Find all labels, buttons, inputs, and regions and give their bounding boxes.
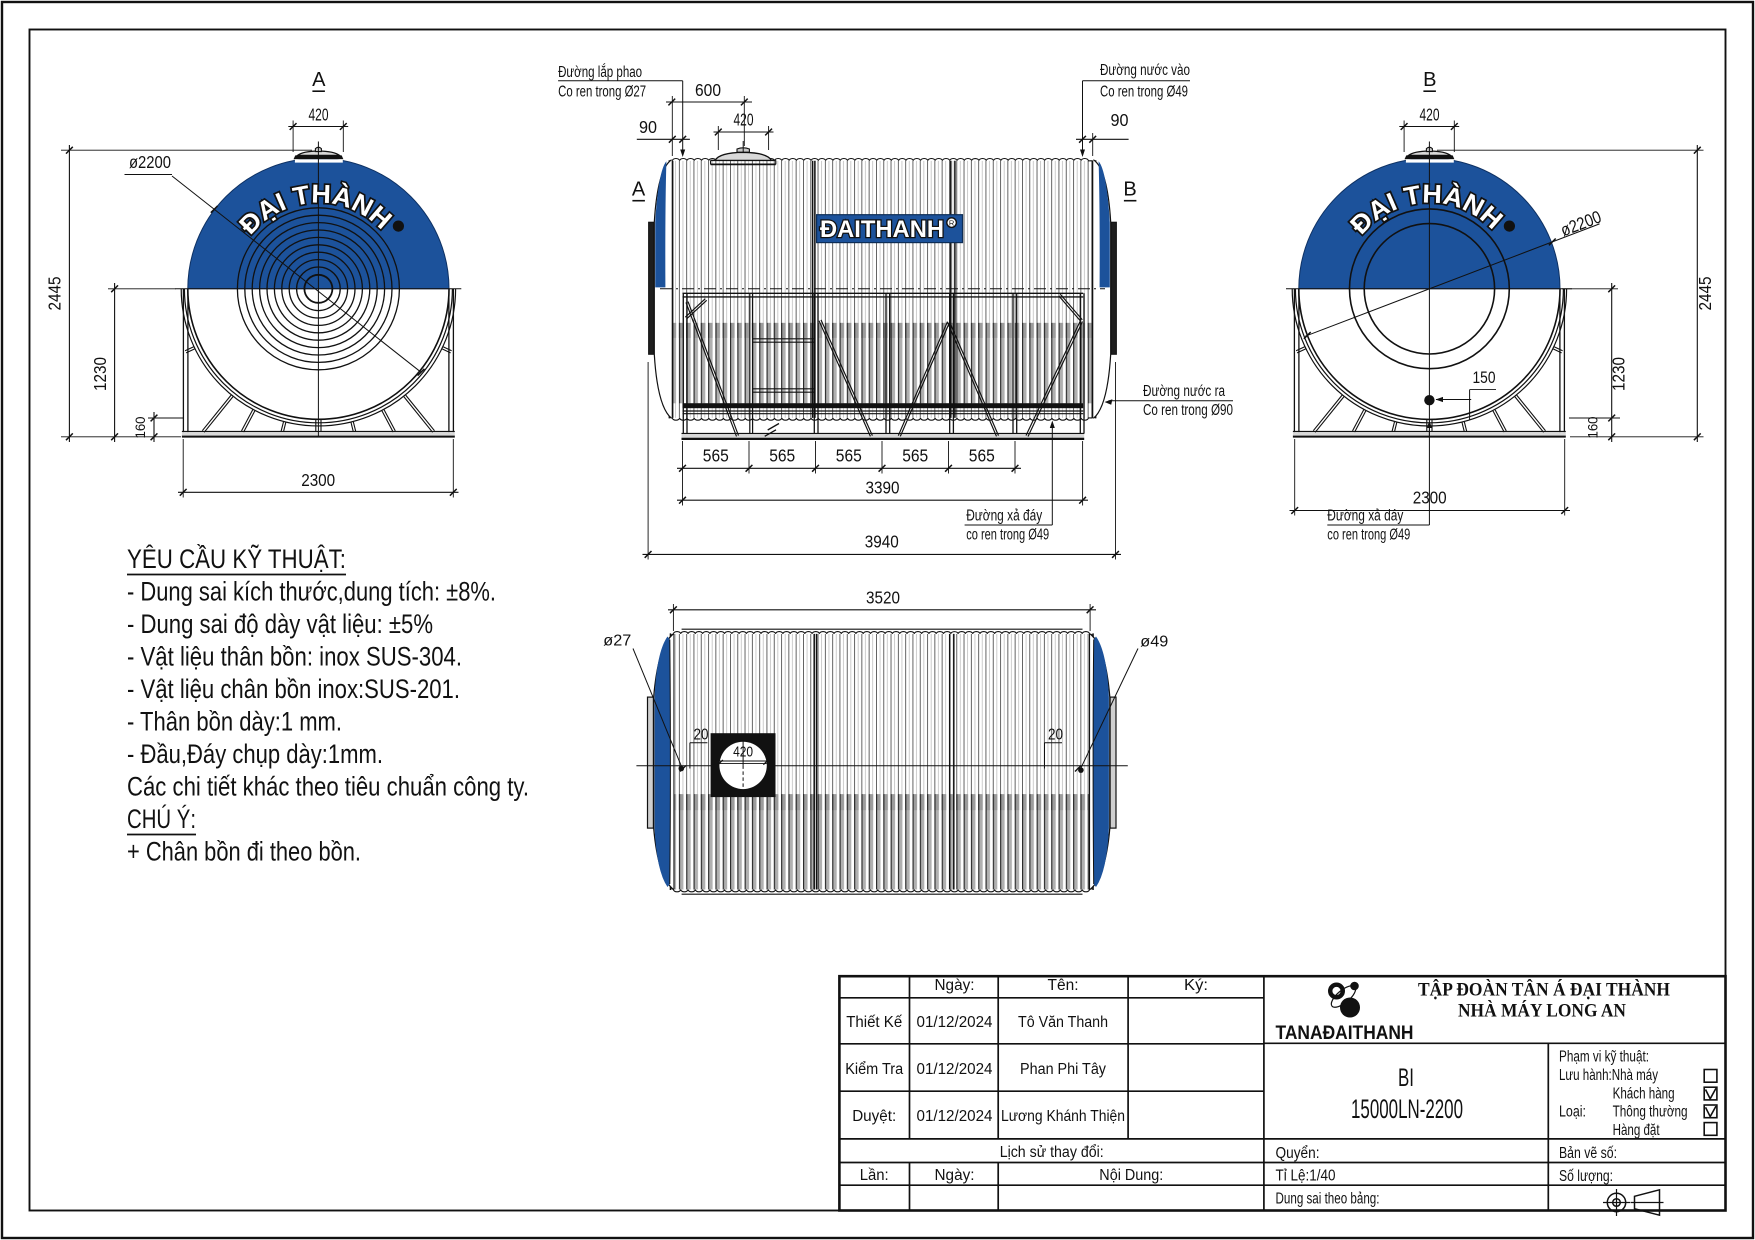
- svg-text:Các chi tiết khác theo tiêu ch: Các chi tiết khác theo tiêu chuẩn công t…: [127, 772, 529, 802]
- svg-text:Ngày:: Ngày:: [935, 1167, 975, 1184]
- svg-text:Phan Phi Tây: Phan Phi Tây: [1020, 1061, 1106, 1078]
- svg-text:Loại:: Loại:: [1559, 1104, 1586, 1121]
- svg-text:Tên:: Tên:: [1048, 977, 1079, 994]
- svg-text:Lưu hành:Nhà máy: Lưu hành:Nhà máy: [1559, 1067, 1658, 1084]
- svg-text:20: 20: [1048, 727, 1063, 744]
- svg-text:ĐAITHANH: ĐAITHANH: [820, 216, 944, 243]
- svg-text:B: B: [1123, 179, 1136, 201]
- svg-text:R: R: [949, 219, 955, 228]
- svg-text:A: A: [312, 69, 326, 91]
- svg-text:co ren trong Ø49: co ren trong Ø49: [1327, 527, 1410, 544]
- svg-text:- Thân bồn dày:1 mm.: - Thân bồn dày:1 mm.: [127, 707, 342, 737]
- svg-text:565: 565: [836, 446, 862, 466]
- svg-text:Tỉ Lệ:1/40: Tỉ Lệ:1/40: [1276, 1168, 1336, 1185]
- svg-text:565: 565: [902, 446, 928, 466]
- svg-text:420: 420: [309, 105, 329, 125]
- svg-text:Số lượng:: Số lượng:: [1559, 1168, 1613, 1185]
- svg-text:ø27: ø27: [603, 633, 631, 650]
- svg-text:Đường nước vào: Đường nước vào: [1100, 62, 1190, 79]
- svg-text:1230: 1230: [1609, 357, 1629, 391]
- svg-text:TẬP ĐOÀN TÂN Á ĐẠI THÀNH: TẬP ĐOÀN TÂN Á ĐẠI THÀNH: [1418, 979, 1670, 1001]
- svg-text:Quyển:: Quyển:: [1276, 1145, 1320, 1162]
- svg-text:Thiết Kế: Thiết Kế: [846, 1014, 902, 1031]
- svg-text:2445: 2445: [1695, 277, 1715, 311]
- svg-text:Lương Khánh Thiện: Lương Khánh Thiện: [1001, 1108, 1125, 1125]
- svg-text:+ Chân bồn đi theo bồn.: + Chân bồn đi theo bồn.: [127, 837, 361, 867]
- svg-text:2300: 2300: [301, 470, 335, 490]
- svg-text:Ngày:: Ngày:: [935, 977, 975, 994]
- svg-text:Duyệt:: Duyệt:: [852, 1108, 896, 1125]
- svg-text:- Vật liệu thân bồn: inox SUS-: - Vật liệu thân bồn: inox SUS-304.: [127, 642, 462, 672]
- svg-text:Đường xả đáy: Đường xả đáy: [966, 508, 1042, 525]
- svg-text:Đường xả đáy: Đường xả đáy: [1327, 508, 1403, 525]
- svg-text:B: B: [1423, 69, 1436, 91]
- svg-text:Phạm vi kỹ thuật:: Phạm vi kỹ thuật:: [1559, 1049, 1649, 1066]
- svg-text:3390: 3390: [866, 478, 900, 498]
- svg-text:600: 600: [695, 80, 721, 100]
- svg-text:Co ren trong Ø90: Co ren trong Ø90: [1143, 402, 1233, 419]
- svg-text:Kiểm Tra: Kiểm Tra: [845, 1061, 903, 1078]
- svg-text:Ký:: Ký:: [1184, 977, 1208, 994]
- svg-text:A: A: [632, 179, 646, 201]
- svg-text:Lịch sử thay đổi:: Lịch sử thay đổi:: [1000, 1144, 1104, 1161]
- svg-text:160: 160: [1586, 417, 1601, 439]
- svg-text:3940: 3940: [865, 532, 899, 552]
- svg-text:Lần:: Lần:: [860, 1167, 889, 1184]
- svg-text:- Dung sai độ dày vật liệu: ±5: - Dung sai độ dày vật liệu: ±5%: [127, 609, 433, 639]
- svg-text:Co ren trong Ø27: Co ren trong Ø27: [558, 84, 646, 101]
- svg-text:565: 565: [703, 446, 729, 466]
- svg-text:15000LN-2200: 15000LN-2200: [1351, 1094, 1463, 1124]
- svg-text:90: 90: [639, 117, 657, 137]
- svg-text:420: 420: [734, 110, 754, 130]
- svg-text:2445: 2445: [45, 277, 65, 311]
- svg-text:Đường nước ra: Đường nước ra: [1143, 383, 1225, 400]
- svg-text:Tô Văn Thanh: Tô Văn Thanh: [1018, 1014, 1108, 1031]
- svg-text:- Dung sai kích thước,dung tíc: - Dung sai kích thước,dung tích: ±8%.: [127, 577, 496, 607]
- svg-text:3520: 3520: [866, 587, 900, 607]
- svg-text:CHÚ Ý:: CHÚ Ý:: [127, 803, 196, 834]
- svg-text:- Đầu,Đáy chụp dày:1mm.: - Đầu,Đáy chụp dày:1mm.: [127, 739, 383, 769]
- svg-text:- Vật liệu chân bồn inox:SUS-2: - Vật liệu chân bồn inox:SUS-201.: [127, 674, 460, 704]
- svg-text:150: 150: [1473, 368, 1496, 387]
- svg-text:565: 565: [969, 446, 995, 466]
- svg-text:01/12/2024: 01/12/2024: [917, 1014, 993, 1031]
- svg-text:Co ren trong Ø49: Co ren trong Ø49: [1100, 84, 1188, 101]
- svg-text:Hàng đặt: Hàng đặt: [1613, 1122, 1661, 1139]
- svg-text:420: 420: [1420, 105, 1440, 125]
- svg-text:ø49: ø49: [1140, 634, 1168, 651]
- svg-text:20: 20: [694, 727, 709, 744]
- svg-text:YÊU CẦU KỸ THUẬT:: YÊU CẦU KỸ THUẬT:: [127, 543, 346, 574]
- svg-text:565: 565: [769, 446, 795, 466]
- svg-text:1230: 1230: [90, 357, 110, 391]
- svg-text:BI: BI: [1398, 1064, 1414, 1092]
- svg-text:Đường lắp phao: Đường lắp phao: [558, 64, 642, 81]
- svg-text:ø2200: ø2200: [129, 152, 171, 172]
- svg-text:90: 90: [1111, 110, 1129, 130]
- svg-text:01/12/2024: 01/12/2024: [917, 1108, 993, 1125]
- svg-text:co ren trong Ø49: co ren trong Ø49: [966, 527, 1049, 544]
- svg-text:NHÀ MÁY LONG AN: NHÀ MÁY LONG AN: [1458, 1000, 1626, 1022]
- svg-text:TANAĐAITHANH: TANAĐAITHANH: [1276, 1023, 1414, 1044]
- svg-text:Bản vẽ số:: Bản vẽ số:: [1559, 1145, 1617, 1162]
- svg-text:160: 160: [133, 417, 148, 439]
- svg-text:Thông thường: Thông thường: [1613, 1104, 1688, 1121]
- svg-text:Dung sai theo bảng:: Dung sai theo bảng:: [1276, 1191, 1380, 1208]
- svg-text:Khách hàng: Khách hàng: [1613, 1086, 1675, 1103]
- svg-text:Nội Dung:: Nội Dung:: [1099, 1167, 1163, 1184]
- svg-text:01/12/2024: 01/12/2024: [917, 1061, 993, 1078]
